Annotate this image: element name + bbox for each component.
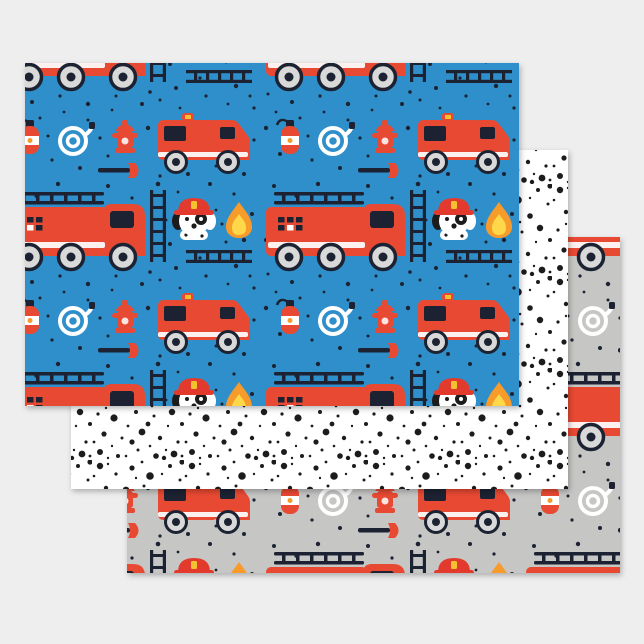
product-image-canvas [0,0,644,644]
sheet-firetruck-blue [25,63,519,406]
wrapping-paper-product-image [0,0,644,644]
sheet-firetruck-blue-surface [25,63,519,406]
